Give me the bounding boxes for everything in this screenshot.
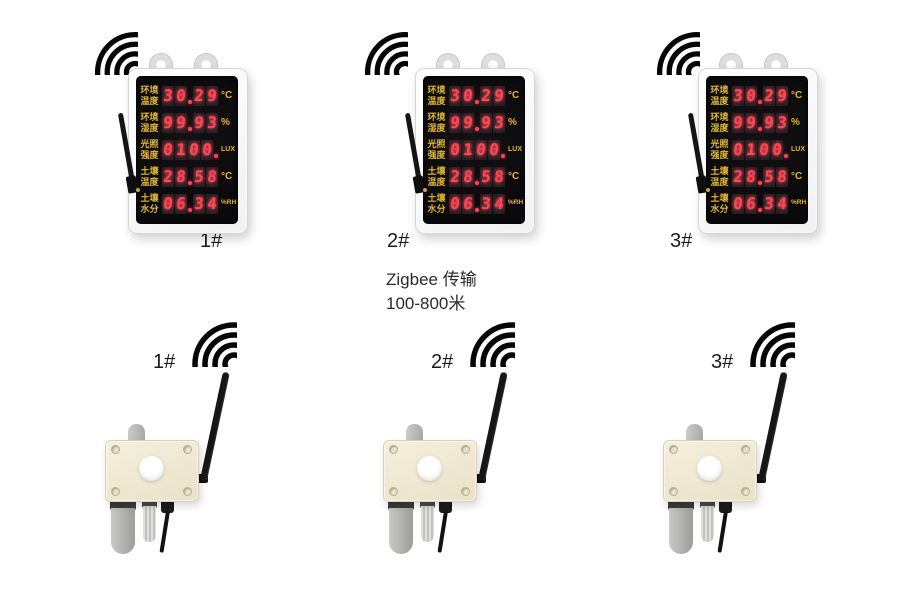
sensor-cable [159, 511, 170, 553]
unit-number-label: 3# [711, 351, 733, 374]
sensor-box [105, 440, 199, 502]
row-unit: °C [508, 172, 523, 182]
screen-row: 光照强度 80818080 LUX [139, 137, 238, 162]
screen-row: 土壤温度 82888588 °C [709, 164, 808, 189]
row-label: 环境温度 [709, 85, 730, 106]
row-value: 89898983 [732, 113, 789, 133]
row-unit: %RH [508, 200, 523, 207]
wifi-signal-icon [358, 25, 408, 75]
row-label: 环境温度 [139, 85, 160, 106]
row-value: 80818080 [732, 140, 789, 160]
row-value: 83808289 [162, 86, 219, 106]
antenna-connector [706, 188, 710, 192]
screen-row: 土壤水分 80868384 %RH [426, 191, 525, 216]
sensor-unit: 2# [338, 315, 573, 570]
antenna-connector [423, 188, 427, 192]
wifi-signal-icon [185, 315, 237, 367]
screen-row: 光照强度 80818080 LUX [709, 137, 808, 162]
display-panel-frame: 环境温度 83808289 °C 环境湿度 89898983 % 光照强度 80… [698, 68, 818, 234]
row-unit: % [221, 118, 236, 128]
row-unit: °C [221, 91, 236, 101]
row-unit: % [791, 118, 806, 128]
antenna [200, 372, 230, 481]
screw-icon [111, 487, 120, 496]
row-label: 光照强度 [426, 139, 447, 160]
row-unit: °C [791, 172, 806, 182]
wifi-signal-icon [743, 315, 795, 367]
sensor-box [663, 440, 757, 502]
humidity-probe [421, 506, 434, 542]
row-value: 80868384 [732, 194, 789, 214]
screw-icon [741, 445, 750, 454]
sensor-unit: 3# [618, 315, 853, 570]
row-value: 80818080 [162, 140, 219, 160]
screen-row: 环境湿度 89898983 % [709, 110, 808, 135]
row-unit: %RH [221, 200, 236, 207]
screen-row: 环境湿度 89898983 % [139, 110, 238, 135]
antenna-connector [136, 188, 140, 192]
sensor-cable [437, 511, 448, 553]
unit-number-label: 1# [153, 351, 175, 374]
screw-icon [669, 487, 678, 496]
screw-icon [461, 487, 470, 496]
zigbee-note-line1: Zigbee 传输 [386, 268, 477, 292]
unit-number-label: 2# [387, 230, 409, 253]
display-unit: 环境温度 83808289 °C 环境湿度 89898983 % 光照强度 80… [30, 20, 300, 260]
screw-icon [111, 445, 120, 454]
unit-number-label: 2# [431, 351, 453, 374]
screen-row: 土壤温度 82888588 °C [426, 164, 525, 189]
screen-row: 环境湿度 89898983 % [426, 110, 525, 135]
sensor-cable [717, 511, 728, 553]
row-value: 80868384 [162, 194, 219, 214]
screen-row: 环境温度 83808289 °C [139, 83, 238, 108]
row-unit: LUX [508, 146, 523, 153]
row-value: 83808289 [732, 86, 789, 106]
soil-probe [389, 508, 413, 554]
screen-row: 环境温度 83808289 °C [426, 83, 525, 108]
screen-row: 土壤温度 82888588 °C [139, 164, 238, 189]
zigbee-transmission-note: Zigbee 传输 100-800米 [386, 268, 477, 316]
row-label: 环境湿度 [426, 112, 447, 133]
unit-number-label: 3# [670, 230, 692, 253]
wifi-signal-icon [88, 25, 138, 75]
led-screen: 环境温度 83808289 °C 环境湿度 89898983 % 光照强度 80… [136, 76, 238, 224]
screw-icon [389, 445, 398, 454]
row-unit: LUX [221, 146, 236, 153]
screw-icon [669, 445, 678, 454]
row-unit: °C [221, 172, 236, 182]
row-label: 土壤水分 [709, 193, 730, 214]
screw-icon [741, 487, 750, 496]
row-label: 土壤温度 [139, 166, 160, 187]
row-value: 89898983 [162, 113, 219, 133]
antenna [758, 372, 788, 481]
humidity-probe [143, 506, 156, 542]
row-label: 环境温度 [426, 85, 447, 106]
row-value: 80868384 [449, 194, 506, 214]
row-value: 82888588 [449, 167, 506, 187]
light-sensor-dome [417, 456, 442, 481]
row-label: 光照强度 [139, 139, 160, 160]
led-screen: 环境温度 83808289 °C 环境湿度 89898983 % 光照强度 80… [706, 76, 808, 224]
row-unit: LUX [791, 146, 806, 153]
row-value: 82888588 [162, 167, 219, 187]
sensor-box [383, 440, 477, 502]
screw-icon [183, 445, 192, 454]
row-label: 环境湿度 [709, 112, 730, 133]
display-panel-frame: 环境温度 83808289 °C 环境湿度 89898983 % 光照强度 80… [128, 68, 248, 234]
soil-probe [111, 508, 135, 554]
screw-icon [389, 487, 398, 496]
sensor-unit: 1# [60, 315, 295, 570]
row-unit: °C [791, 91, 806, 101]
led-screen: 环境温度 83808289 °C 环境湿度 89898983 % 光照强度 80… [423, 76, 525, 224]
row-unit: %RH [791, 200, 806, 207]
row-label: 光照强度 [709, 139, 730, 160]
display-unit: 环境温度 83808289 °C 环境湿度 89898983 % 光照强度 80… [317, 20, 587, 260]
light-sensor-dome [697, 456, 722, 481]
row-label: 环境湿度 [139, 112, 160, 133]
display-panel-frame: 环境温度 83808289 °C 环境湿度 89898983 % 光照强度 80… [415, 68, 535, 234]
row-label: 土壤温度 [709, 166, 730, 187]
row-value: 89898983 [449, 113, 506, 133]
light-sensor-dome [139, 456, 164, 481]
zigbee-note-line2: 100-800米 [386, 292, 477, 316]
wifi-signal-icon [650, 25, 700, 75]
row-unit: °C [508, 91, 523, 101]
antenna [478, 372, 508, 481]
wifi-signal-icon [463, 315, 515, 367]
row-value: 82888588 [732, 167, 789, 187]
row-label: 土壤水分 [426, 193, 447, 214]
screen-row: 光照强度 80818080 LUX [426, 137, 525, 162]
row-value: 80818080 [449, 140, 506, 160]
screen-row: 环境温度 83808289 °C [709, 83, 808, 108]
display-unit: 环境温度 83808289 °C 环境湿度 89898983 % 光照强度 80… [600, 20, 870, 260]
screen-row: 土壤水分 80868384 %RH [139, 191, 238, 216]
humidity-probe [701, 506, 714, 542]
row-label: 土壤温度 [426, 166, 447, 187]
soil-probe [669, 508, 693, 554]
row-unit: % [508, 118, 523, 128]
screw-icon [183, 487, 192, 496]
screen-row: 土壤水分 80868384 %RH [709, 191, 808, 216]
row-value: 83808289 [449, 86, 506, 106]
row-label: 土壤水分 [139, 193, 160, 214]
screw-icon [461, 445, 470, 454]
